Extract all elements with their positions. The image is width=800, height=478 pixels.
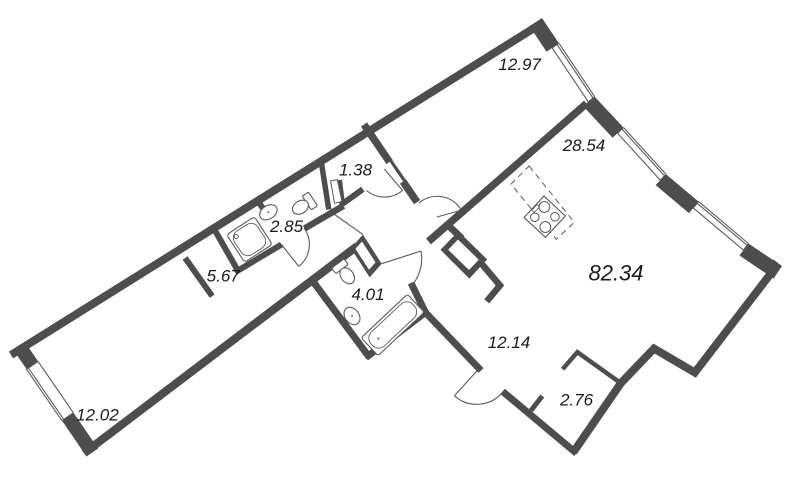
svg-text:12.14: 12.14 [488, 333, 531, 352]
svg-text:12.02: 12.02 [76, 406, 119, 425]
svg-text:12.97: 12.97 [498, 55, 541, 74]
svg-text:2.85: 2.85 [269, 217, 304, 236]
svg-text:28.54: 28.54 [562, 136, 606, 155]
svg-text:2.76: 2.76 [559, 391, 594, 410]
svg-text:82.34: 82.34 [588, 261, 643, 286]
svg-text:1.38: 1.38 [339, 161, 373, 180]
svg-text:4.01: 4.01 [351, 285, 384, 304]
svg-text:5.67: 5.67 [207, 267, 241, 286]
